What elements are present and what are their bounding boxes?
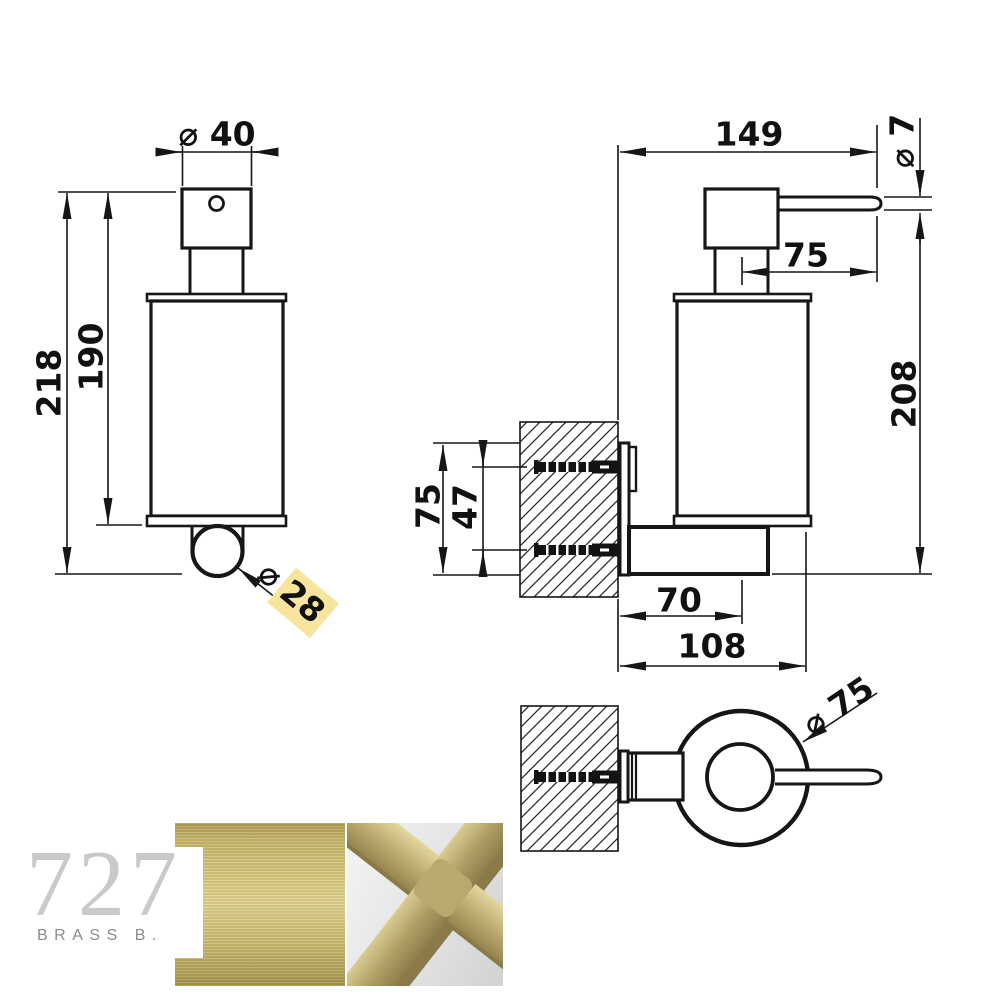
front-bottle — [147, 294, 286, 526]
side-wall-section — [520, 422, 618, 597]
brand-number: 727 — [26, 846, 182, 922]
dim-pump-diameter: ⌀ 40 — [178, 118, 255, 151]
top-bracket-arm — [620, 751, 683, 802]
side-holder-cup — [629, 527, 768, 574]
brand-subtitle: BRASS B. — [37, 927, 163, 945]
front-holder-ring — [192, 526, 243, 576]
dim-wall-to-axis: 70 — [656, 584, 702, 617]
front-pump-head — [182, 189, 251, 294]
brass-cross-handle-photo — [347, 823, 503, 986]
front-view — [147, 189, 286, 576]
dim-plate-height: 75 — [412, 483, 445, 529]
side-bottle — [674, 294, 811, 526]
product-photo — [347, 823, 503, 986]
dim-wall-to-front-edge: 108 — [678, 630, 747, 663]
side-pump-spout — [778, 197, 881, 210]
dim-body-height: 190 — [75, 323, 108, 392]
top-wall-screw — [534, 770, 618, 784]
technical-drawing-sheet: ⌀ 40 218 190 ⌀28 149 ⌀ 7 75 208 75 47 70… — [0, 0, 1000, 1000]
dim-spout-reach: 75 — [783, 239, 829, 272]
dim-side-overall-height: 208 — [888, 360, 921, 429]
dim-spout-diameter: ⌀ 7 — [886, 114, 919, 168]
dim-overall-height: 218 — [33, 349, 66, 418]
dim-screw-spacing: 47 — [449, 484, 482, 530]
top-pump-spout — [775, 770, 881, 784]
dim-overall-depth: 149 — [715, 118, 784, 151]
